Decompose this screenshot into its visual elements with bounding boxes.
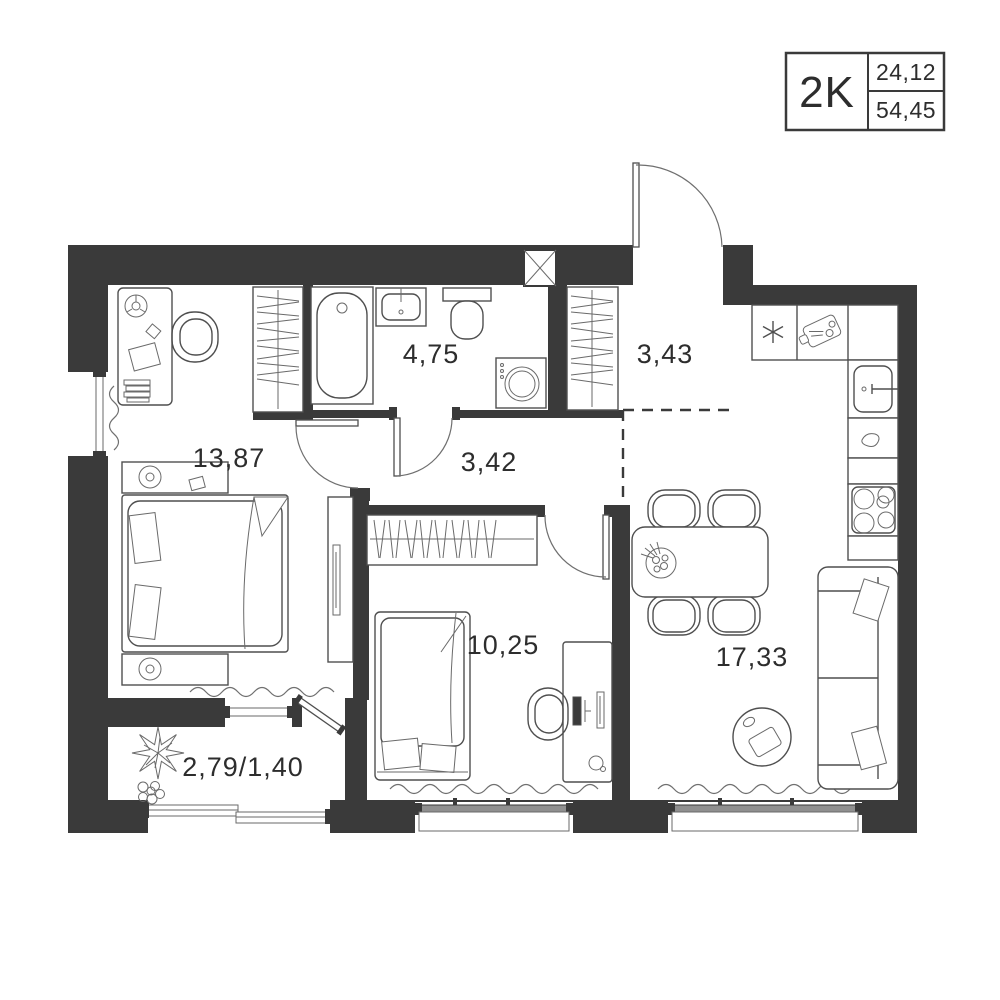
chair-icon (528, 688, 568, 740)
floor-plan-page: 13,87 4,75 3,43 3,42 10,25 17,33 2,79/1,… (0, 0, 1000, 1000)
floor-plan: 13,87 4,75 3,43 3,42 10,25 17,33 2,79/1,… (0, 0, 1000, 1000)
dining-table-icon (632, 527, 768, 597)
toilet-icon (443, 288, 491, 339)
hallway-area-label: 3,42 (461, 447, 518, 477)
bedroom-main-door-icon (296, 420, 358, 488)
desk-icon (118, 288, 172, 405)
entrance-door-icon (633, 163, 722, 247)
window-icon-living-room (668, 798, 862, 833)
entry-wardrobe-hangers-icon (567, 287, 618, 410)
zone-boundary-dashed (623, 410, 733, 500)
bathtub-icon (311, 287, 373, 404)
plant-icon (132, 727, 184, 779)
living-area-value: 24,12 (876, 59, 936, 85)
wardrobe-hangers-icon (253, 287, 303, 412)
rooms-count-label: 2K (799, 68, 855, 117)
window-icon-bedroom-second (415, 798, 573, 833)
stove-icon (848, 484, 898, 536)
kitchen-sink-icon (848, 360, 898, 418)
window-icon-bedroom-main-left (68, 372, 108, 456)
double-bed-icon (122, 495, 288, 652)
vent-shaft-icon (524, 250, 556, 286)
single-bed-icon (375, 612, 470, 780)
washing-machine-icon (496, 358, 546, 408)
bedroom-second-area-label: 10,25 (467, 630, 540, 660)
entry-hall-area-label: 3,43 (637, 339, 694, 369)
balcony-area-label: 2,79/1,40 (182, 752, 304, 782)
counter-cell (848, 536, 898, 560)
nightstand-lamp-icon (122, 654, 228, 685)
window-icon-bedroom-to-balcony (225, 698, 292, 727)
balcony-plants (132, 727, 184, 804)
living-kitchen-area-label: 17,33 (716, 642, 789, 672)
desk-icon (563, 642, 612, 782)
chair-icon (172, 312, 218, 362)
washbasin-icon (376, 288, 426, 326)
apartment-info-box: 2K 24,12 54,45 (786, 53, 944, 130)
counter-cell (848, 458, 898, 484)
coffee-table-icon (733, 708, 791, 766)
wardrobe-hangers-icon (367, 515, 537, 565)
total-area-value: 54,45 (876, 97, 936, 123)
bedroom-second-door-icon (545, 515, 609, 579)
balcony-glazing-icon (142, 803, 332, 824)
bathroom-area-label: 4,75 (403, 339, 460, 369)
kettle-icon (848, 418, 898, 458)
sofa-icon (818, 567, 898, 789)
kitchen-counter (752, 305, 898, 560)
bathroom-door-icon (394, 418, 452, 476)
bedroom-main-area-label: 13,87 (193, 443, 266, 473)
tv-stand-icon (328, 497, 353, 662)
